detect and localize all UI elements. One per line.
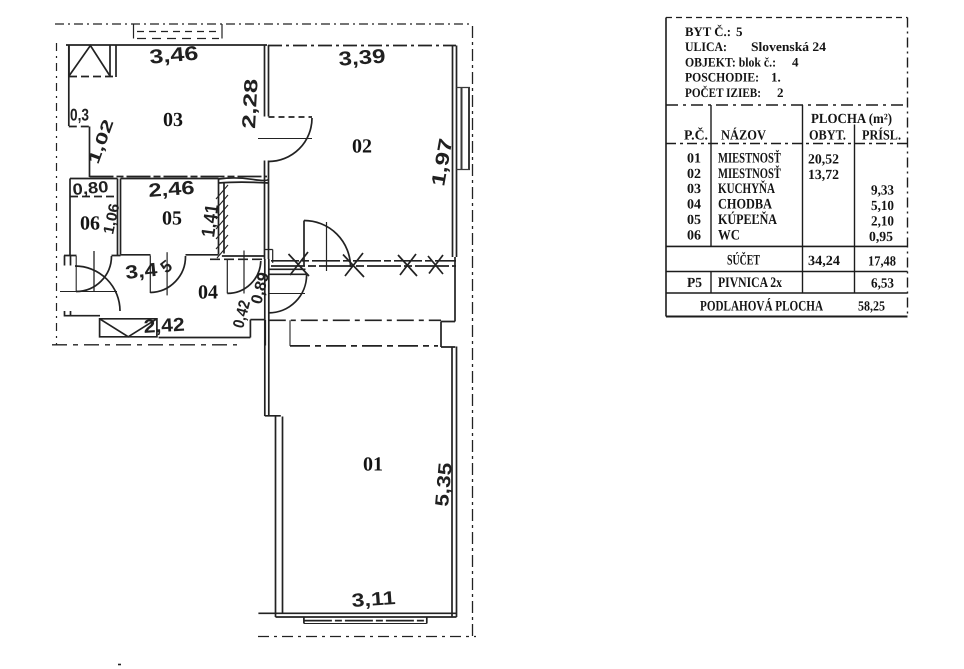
svg-text:06: 06 [80, 213, 100, 235]
svg-text:PRÍSL.: PRÍSL. [862, 127, 901, 144]
svg-text:Slovenská 24: Slovenská 24 [751, 39, 827, 54]
svg-text:ULICA:: ULICA: [685, 39, 727, 54]
svg-text:2: 2 [777, 85, 784, 100]
svg-text:13,72: 13,72 [808, 168, 839, 183]
svg-text:04: 04 [687, 198, 701, 213]
svg-text:34,24: 34,24 [808, 254, 840, 269]
svg-text:CHODBA: CHODBA [718, 197, 772, 213]
svg-text:3,4: 3,4 [124, 260, 159, 284]
svg-text:1.: 1. [771, 70, 781, 85]
svg-text:PLOCHA (m²): PLOCHA (m²) [811, 112, 892, 127]
svg-text:OBYT.: OBYT. [809, 129, 846, 144]
svg-text:2,46: 2,46 [148, 178, 195, 202]
svg-text:3,46: 3,46 [149, 43, 200, 69]
svg-text:P5: P5 [687, 276, 702, 291]
svg-text:06: 06 [687, 229, 701, 244]
svg-text:KUCHYŇA: KUCHYŇA [718, 180, 775, 197]
svg-text:3,39: 3,39 [338, 46, 386, 71]
svg-text:03: 03 [163, 109, 183, 131]
svg-text:5,35: 5,35 [432, 461, 457, 507]
svg-text:9,33: 9,33 [871, 184, 894, 199]
svg-text:6,53: 6,53 [871, 277, 894, 292]
svg-text:POSCHODIE:: POSCHODIE: [685, 70, 759, 85]
svg-text:4: 4 [792, 55, 799, 70]
svg-text:01: 01 [363, 454, 383, 476]
svg-text:SÚČET: SÚČET [727, 252, 760, 269]
svg-text:02: 02 [352, 136, 372, 158]
svg-text:2,10: 2,10 [871, 215, 894, 230]
svg-text:05: 05 [687, 213, 701, 228]
svg-text:BYT Č.:: BYT Č.: [685, 24, 731, 39]
svg-text:20,52: 20,52 [808, 153, 839, 168]
svg-text:04: 04 [198, 282, 218, 304]
svg-text:17,48: 17,48 [868, 255, 896, 270]
svg-text:P.Č.: P.Č. [684, 127, 708, 144]
svg-text:PODLAHOVÁ PLOCHA: PODLAHOVÁ PLOCHA [700, 298, 823, 315]
svg-text:0,95: 0,95 [869, 230, 893, 245]
svg-text:0,80: 0,80 [72, 179, 109, 199]
svg-text:NÁZOV: NÁZOV [721, 127, 766, 144]
svg-text:03: 03 [687, 182, 701, 197]
svg-text:0,3: 0,3 [70, 106, 89, 125]
svg-text:WC: WC [718, 228, 740, 244]
svg-text:POČET IZIEB:: POČET IZIEB: [685, 85, 761, 100]
svg-text:02: 02 [687, 167, 701, 182]
svg-text:5,10: 5,10 [871, 199, 894, 214]
svg-text:PIVNICA 2x: PIVNICA 2x [718, 275, 783, 291]
svg-text:05: 05 [162, 208, 182, 230]
svg-text:01: 01 [687, 152, 701, 167]
svg-text:KÚPEĽŇA: KÚPEĽŇA [718, 211, 777, 228]
svg-text:3,11: 3,11 [351, 588, 397, 612]
svg-text:MIESTNOSŤ: MIESTNOSŤ [718, 150, 781, 167]
svg-text:5: 5 [736, 24, 743, 39]
svg-text:2,42: 2,42 [143, 315, 185, 338]
svg-text:2,28: 2,28 [239, 78, 263, 129]
svg-text:OBJEKT: blok č.:: OBJEKT: blok č.: [685, 55, 776, 70]
svg-text:58,25: 58,25 [858, 300, 885, 315]
svg-text:MIESTNOSŤ: MIESTNOSŤ [718, 165, 781, 182]
